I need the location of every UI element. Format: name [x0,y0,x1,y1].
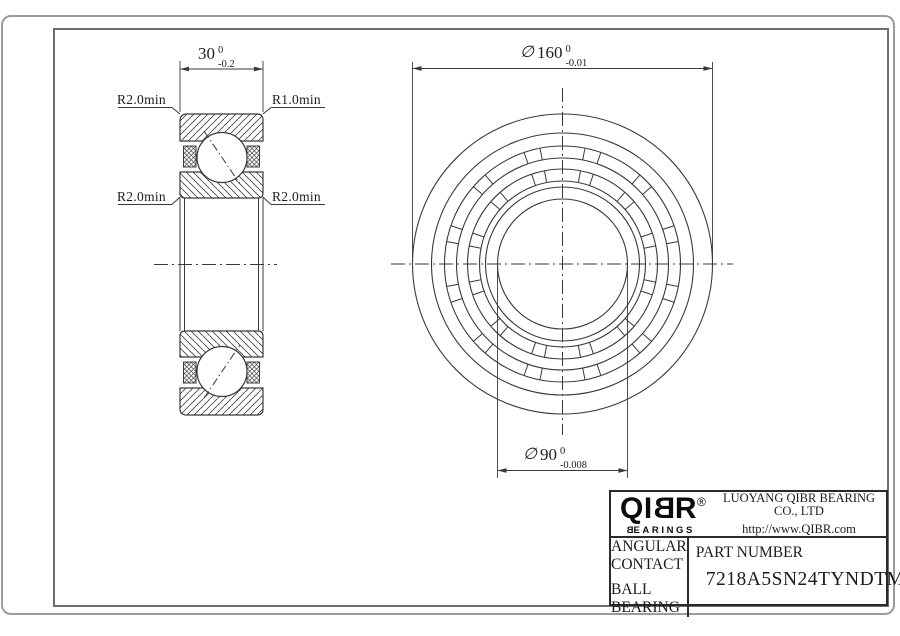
radius-label-mid-right: R2.0min [272,189,321,205]
dimension-od-text: ∅ 160 0 -0.01 [520,44,587,69]
part-number-label: PART NUMBER [696,544,900,562]
title-block: QIBR® BEARINGS LUOYANG QIBR BEARING CO.,… [609,490,888,606]
company-logo: QIBR® BEARINGS [611,492,716,536]
dimension-width-value: 30 [198,45,215,62]
logo-wordmark: QIBR® [620,494,716,524]
cage-section-top-right [247,146,260,167]
title-block-detail-row: ANGULAR CONTACT BALL BEARING PART NUMBER… [611,538,886,617]
company-name: LUOYANG QIBR BEARING CO., LTD [716,492,882,517]
dimension-width-tolerance: 0 -0.2 [218,45,235,70]
product-type-cell: ANGULAR CONTACT BALL BEARING [611,538,689,617]
company-info: LUOYANG QIBR BEARING CO., LTD http://www… [716,492,886,536]
radius-label-top-left: R2.0min [117,92,166,108]
title-block-header-row: QIBR® BEARINGS LUOYANG QIBR BEARING CO.,… [611,492,886,538]
cage-section-top-left [184,146,197,167]
dimension-od-tolerance: 0 -0.01 [565,44,587,69]
bearing-cross-section [154,114,277,415]
dimension-od-value: 160 [537,44,563,61]
product-type-line2: BALL BEARING [611,581,687,617]
diameter-symbol: ∅ [520,44,534,61]
registered-trademark-symbol: ® [697,495,706,509]
diameter-symbol: ∅ [523,446,537,463]
dimension-bore-text: ∅ 90 0 -0.008 [523,446,587,471]
dimension-bore-tolerance: 0 -0.008 [560,446,587,471]
part-number-cell: PART NUMBER 7218A5SN24TYNDTMP4 [689,538,900,617]
drawing-sheet: 30 0 -0.2 ∅ 160 0 -0.01 ∅ 90 0 -0.008 R2… [0,0,900,636]
part-number-value: 7218A5SN24TYNDTMP4 [706,569,900,591]
dimension-width-text: 30 0 -0.2 [198,45,235,70]
radius-label-mid-left: R2.0min [117,189,166,205]
cage-section-bottom-left [184,362,197,383]
cage-section-bottom-right [247,362,260,383]
company-website: http://www.QIBR.com [716,523,882,536]
dimension-bore-value: 90 [540,446,557,463]
logo-subtext: BEARINGS [624,525,716,536]
product-type-line1: ANGULAR CONTACT [611,538,687,574]
radius-label-top-right: R1.0min [272,92,321,108]
bearing-front-view [391,88,733,435]
